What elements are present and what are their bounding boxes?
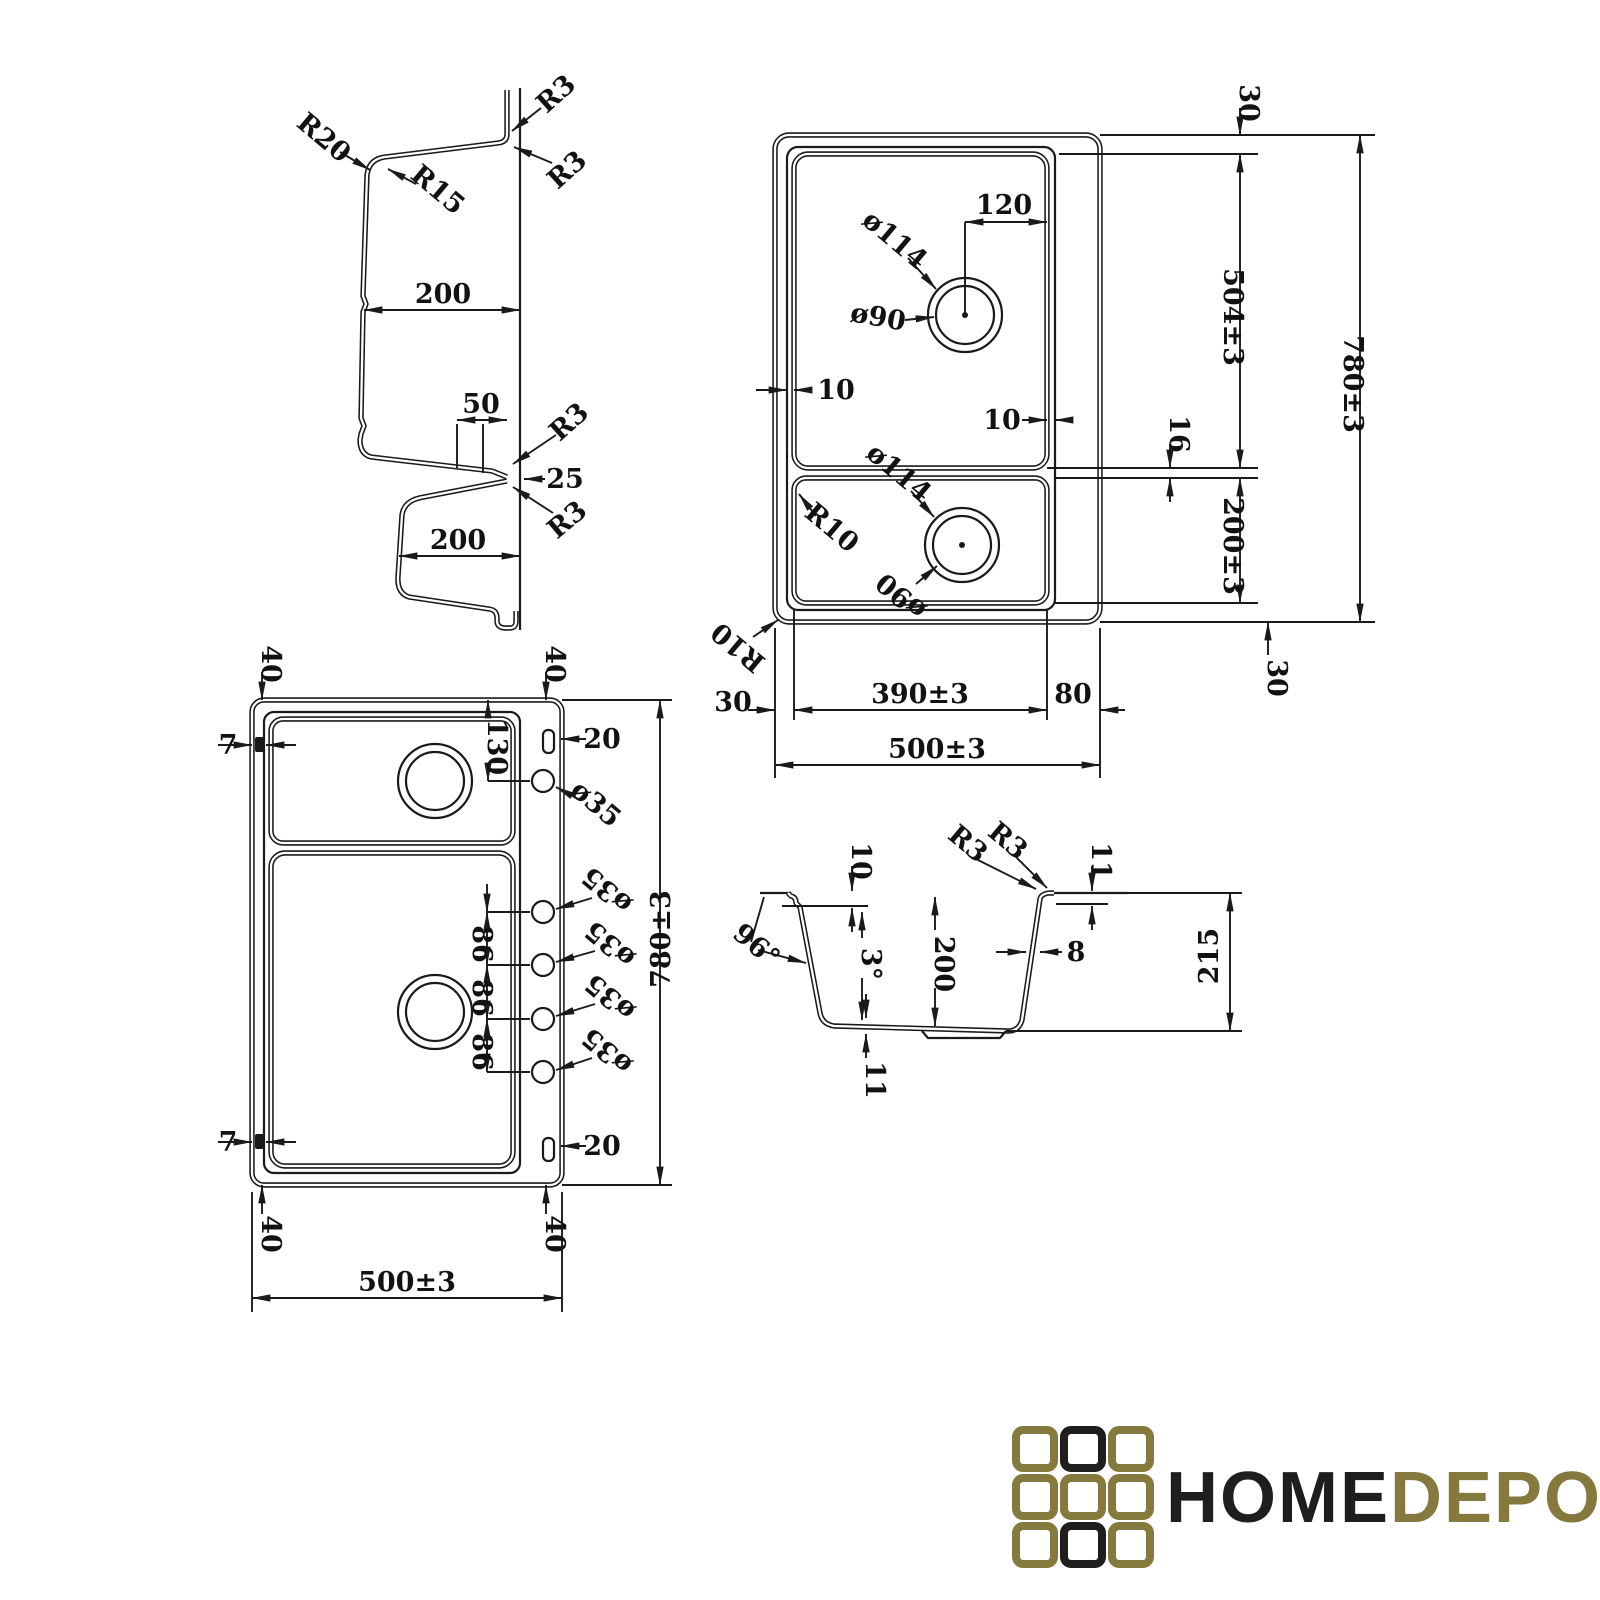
dim-drain1-inner: ø90 [848, 297, 934, 337]
dim-label-divider-gap: 16 [1163, 415, 1194, 453]
logo-grid-icon [1016, 1430, 1150, 1564]
dim-label-corner-tr: 40 [539, 645, 570, 683]
dim-rim-gap-left: 10 [756, 375, 855, 406]
slot-top: 20 [543, 724, 621, 755]
dim-label-bowl-depth: 200 [928, 936, 959, 992]
dim-hole1-dia: ø35 [556, 774, 627, 833]
dim-label-first-hole-offset: 130 [481, 719, 512, 775]
dim-label-bowl2-width: 200 [430, 525, 486, 556]
dim-label-bottom-slope: 3° [855, 948, 886, 980]
dim-wall-angle: 96° [727, 897, 806, 974]
dim-label-overall-depth: 215 [1194, 928, 1225, 984]
dim-label-drain2-inner: ø90 [870, 566, 933, 625]
dim-label-wall-thickness: 8 [1067, 937, 1086, 968]
sink-technical-drawing: R20 R15 R3 R3 200 50 R3 2 [0, 0, 1600, 1600]
dim-label-drain2-outer: ø114 [860, 437, 937, 509]
drain2 [925, 508, 999, 582]
dim-label-hole2: ø35 [576, 860, 639, 919]
slot-bottom: 20 [543, 1131, 621, 1162]
dim-drain1-offset: 120 [965, 190, 1047, 222]
logo-square [1112, 1526, 1150, 1564]
brand-logo: HOMEDEPO [1016, 1430, 1600, 1564]
dim-bowl2-length: 200±3 [1217, 478, 1248, 603]
dim-label-corner-bl: 40 [255, 1215, 286, 1253]
dim-divider-width: 50 [457, 389, 507, 473]
dim-label-slot-top: 20 [583, 724, 621, 755]
dim-label-overall-width: 500±3 [888, 734, 986, 765]
dim-label-divider-offset: 25 [546, 464, 584, 495]
dim-corner-br: 40 [539, 1185, 570, 1253]
dim-label-r15: R15 [405, 159, 471, 221]
dim-hole5-dia: ø35 [556, 1021, 639, 1080]
dim-label-corner-tl: 40 [255, 645, 286, 683]
dim-bottom-margin: 30 [1261, 622, 1292, 697]
dim-label-slot-bottom: 20 [583, 1131, 621, 1162]
dim-label-bowl2-length: 200±3 [1217, 497, 1248, 595]
clip-mark-bottom: 7 [218, 1127, 296, 1158]
dim-label-r10-outer: R10 [705, 616, 771, 678]
dim-label-r3-lip-top: R3 [531, 69, 582, 120]
cross-section-view: 10 96° 3° 200 8 R3 R3 [727, 816, 1242, 1099]
dim-bowl-width: 390±3 [794, 679, 1047, 710]
dim-label-spacing1: 86 [466, 925, 497, 963]
profile-section-view: R20 R15 R3 R3 200 50 R3 2 [291, 69, 595, 630]
bowl-section-outline [788, 893, 1054, 1031]
dim-overall-length: 780±3 [646, 700, 677, 1185]
drain1 [928, 222, 1002, 352]
dim-overall-width: 500±3 [252, 1267, 562, 1298]
dim-label-divider-width: 50 [462, 389, 500, 420]
dim-label-hole4: ø35 [579, 967, 642, 1026]
dim-label-bowl-width: 390±3 [871, 679, 969, 710]
logo-square [1064, 1430, 1102, 1468]
drain1 [398, 744, 472, 818]
dim-bottom-slope: 3° [855, 912, 886, 1020]
dim-r10-bowl: R10 [799, 494, 865, 559]
small-bowl-outline [271, 719, 513, 843]
dim-r3-divider-lower: R3 [513, 487, 593, 545]
dim-label-drain1-outer: ø114 [856, 204, 933, 276]
dim-label-rim-gap-left: 10 [817, 375, 855, 406]
dim-label-overall-length: 780±3 [646, 890, 677, 988]
dim-rim-gap-right: 10 [983, 405, 1072, 436]
svg-text:HOMEDEPO: HOMEDEPO [1166, 1458, 1600, 1538]
dim-top-margin: 30 [1233, 84, 1264, 135]
dim-label-rim-drop: 10 [845, 842, 876, 880]
logo-text-depo: DEPO [1390, 1458, 1600, 1538]
dim-left-margin: 30 [714, 687, 775, 718]
dim-bowl1-width: 200 [364, 279, 520, 310]
dim-label-corner-br: 40 [539, 1215, 570, 1253]
mounting-holes-view: 40 40 40 40 7 7 [218, 645, 677, 1312]
dim-label-wall-angle: 96° [727, 918, 786, 975]
dim-rim-height: 11 [1056, 842, 1116, 930]
dim-hole2-dia: ø35 [556, 860, 639, 919]
dim-label-rim-height: 11 [1085, 842, 1116, 880]
dim-label-overall-width: 500±3 [358, 1267, 456, 1298]
dim-divider-offset: 25 [524, 464, 584, 495]
dim-corner-tl: 40 [255, 645, 286, 700]
dim-label-spacing3: 86 [466, 1033, 497, 1071]
logo-text-home: HOME [1166, 1458, 1390, 1538]
dim-label-hole3: ø35 [579, 914, 642, 973]
dim-r15: R15 [388, 159, 471, 221]
drain2 [398, 975, 472, 1049]
dim-label-bottom-margin: 30 [1261, 659, 1292, 697]
dim-label-spacing2: 86 [466, 979, 497, 1017]
plan-view: 120 ø114 ø90 10 10 30 [705, 84, 1375, 778]
clip-mark-top: 7 [218, 730, 296, 761]
dim-label-r3-outer: R3 [942, 819, 994, 869]
dim-right-margin: 80 [1054, 679, 1125, 710]
dim-bowl-depth: 200 [928, 897, 959, 1026]
dim-label-rim-gap-right: 10 [983, 405, 1021, 436]
dim-label-bowl1-width: 200 [415, 279, 471, 310]
dim-divider-gap: 16 [1163, 415, 1194, 502]
logo-square [1016, 1526, 1054, 1564]
dim-label-r20: R20 [291, 107, 357, 169]
dim-label-clip-top: 7 [219, 730, 238, 761]
drawing-canvas: R20 R15 R3 R3 200 50 R3 2 [0, 0, 1600, 1600]
dim-label-hole5: ø35 [576, 1021, 639, 1080]
dim-hole4-dia: ø35 [556, 967, 642, 1026]
dim-label-drain1-inner: ø90 [848, 297, 908, 337]
dim-corner-tr: 40 [539, 645, 570, 700]
dim-hole3-dia: ø35 [556, 914, 642, 973]
dim-r10-outer: R10 [705, 616, 778, 678]
dim-label-r3-divider-lower: R3 [542, 495, 594, 545]
dim-bottom-thickness: 11 [859, 994, 890, 1099]
dim-label-r3-divider-upper: R3 [544, 397, 595, 448]
dim-label-r3-inner: R3 [982, 816, 1034, 866]
logo-square [1112, 1478, 1150, 1516]
dim-label-bowl1-length: 504±3 [1217, 268, 1248, 366]
dim-drain1-outer: ø114 [856, 204, 936, 289]
dim-label-left-margin: 30 [714, 687, 752, 718]
dim-label-clip-bottom: 7 [219, 1127, 238, 1158]
dim-overall-depth: 215 [1006, 893, 1242, 1031]
logo-square [1064, 1478, 1102, 1516]
dim-overall-width: 500±3 [775, 734, 1100, 765]
dim-label-overall-length: 780±3 [1337, 335, 1368, 433]
dim-bowl2-width: 200 [399, 525, 520, 556]
dim-bowl1-length: 504±3 [1217, 154, 1248, 468]
logo-square [1112, 1430, 1150, 1468]
dim-label-drain1-offset: 120 [976, 190, 1032, 221]
dim-label-hole1: ø35 [564, 774, 627, 833]
dim-r20: R20 [291, 107, 370, 170]
dim-label-bottom-thickness: 11 [859, 1061, 890, 1099]
dim-wall-thickness: 8 [996, 937, 1085, 968]
dim-drain2-inner: ø90 [870, 566, 937, 626]
dim-corner-bl: 40 [255, 1185, 286, 1253]
dim-label-top-margin: 30 [1233, 84, 1264, 122]
dim-r3-lip-top: R3 [512, 69, 582, 131]
logo-square [1016, 1430, 1054, 1468]
dim-r3-divider-upper: R3 [513, 397, 595, 464]
dim-r3-lip-side: R3 [514, 145, 593, 196]
logo-square [1064, 1526, 1102, 1564]
faucet-holes [532, 770, 554, 1083]
dim-overall-length: 780±3 [1337, 135, 1368, 622]
dim-label-r3-lip-side: R3 [542, 145, 593, 196]
logo-square [1016, 1478, 1054, 1516]
dim-label-right-margin: 80 [1054, 679, 1092, 710]
